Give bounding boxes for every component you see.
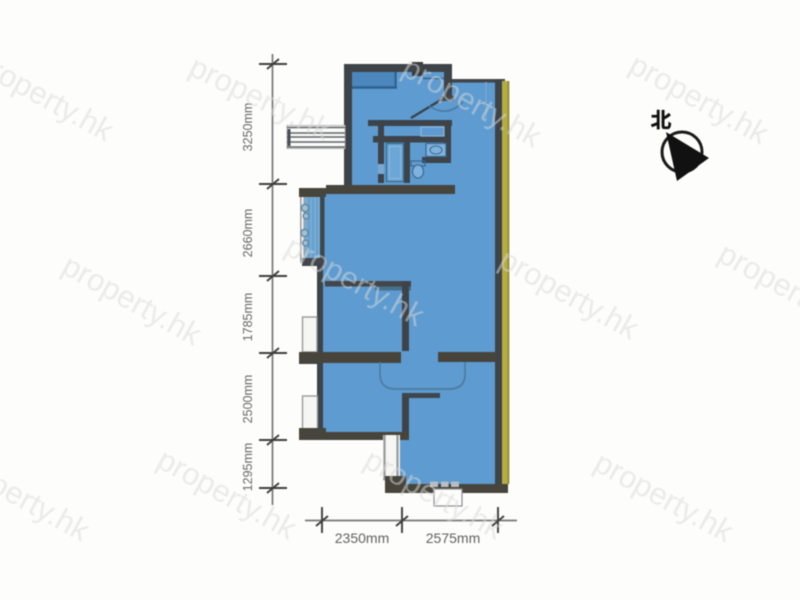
svg-text:2500mm: 2500mm <box>241 375 255 424</box>
svg-text:property.hk: property.hk <box>494 242 645 347</box>
svg-text:property.hk: property.hk <box>0 444 96 549</box>
svg-text:property.hk: property.hk <box>713 236 800 341</box>
svg-text:1785mm: 1785mm <box>241 293 255 342</box>
svg-text:2350mm: 2350mm <box>335 530 389 546</box>
svg-text:property.hk: property.hk <box>589 445 740 550</box>
svg-text:property.hk: property.hk <box>57 248 208 353</box>
svg-text:北: 北 <box>651 109 671 132</box>
svg-text:property.hk: property.hk <box>152 442 303 547</box>
svg-text:property.hk: property.hk <box>0 44 120 149</box>
svg-text:property.hk: property.hk <box>624 47 775 152</box>
svg-text:2660mm: 2660mm <box>241 209 255 258</box>
